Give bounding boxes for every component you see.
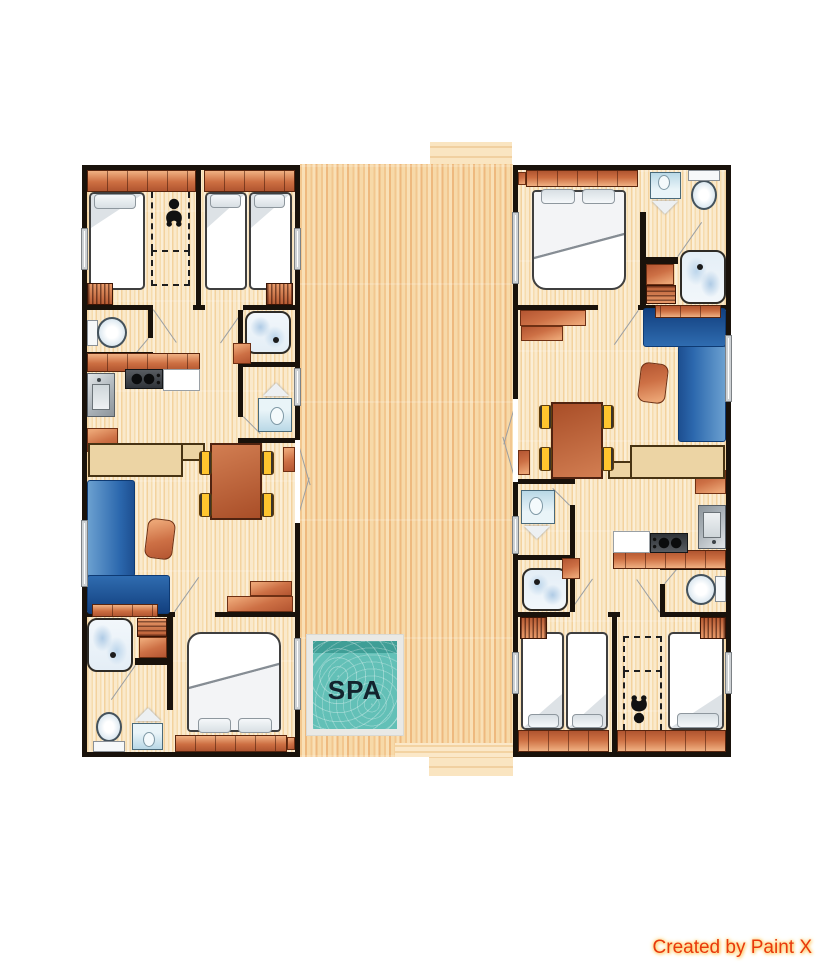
- double-bed: [187, 632, 281, 732]
- stove: [650, 533, 688, 553]
- bed-headshelf: [175, 735, 287, 752]
- window: [294, 228, 301, 270]
- counter-island: [88, 443, 183, 477]
- window: [725, 335, 732, 402]
- kitchen-counter: [613, 531, 650, 553]
- wall-bedrooms: [87, 305, 153, 310]
- unit-right: [513, 165, 731, 757]
- terrace-bottom-step: [429, 755, 513, 776]
- toilet: [691, 180, 717, 210]
- mirror: [135, 708, 161, 721]
- pillow: [528, 714, 559, 728]
- basin: [270, 407, 284, 425]
- bed-sheet: [189, 634, 279, 730]
- kitchen-sink: [87, 373, 115, 417]
- washbasin: [132, 723, 163, 750]
- baby-cot-dashed-line: [623, 672, 625, 730]
- bedside-cabinet: [287, 737, 295, 750]
- sink-basin: [703, 512, 721, 538]
- toilet: [96, 712, 122, 742]
- bed-headshelf: [204, 170, 295, 192]
- chair: [199, 451, 212, 475]
- bed-sheet: [534, 192, 624, 288]
- double-bed: [532, 190, 626, 290]
- sink-faucet: [712, 540, 716, 544]
- cabinet: [233, 343, 251, 364]
- chair: [199, 493, 212, 517]
- pillow: [198, 718, 231, 733]
- window: [512, 516, 519, 554]
- pillow: [94, 194, 136, 209]
- tv-cabinet: [227, 596, 293, 612]
- shower: [87, 618, 133, 672]
- bedside-cabinet: [518, 172, 526, 185]
- corner-sofa: [678, 345, 726, 442]
- unit-left: [82, 165, 300, 757]
- stove: [125, 369, 163, 389]
- basin: [143, 732, 155, 747]
- wall-bedrooms: [608, 612, 620, 617]
- dining-table: [210, 443, 262, 520]
- baby-cot-area: [151, 250, 190, 286]
- basin: [658, 175, 670, 190]
- dining-table: [551, 402, 603, 479]
- wall-bedrooms: [243, 305, 295, 310]
- wardrobe: [266, 283, 293, 305]
- window: [294, 368, 301, 406]
- sofa-shelf: [655, 305, 721, 318]
- floorplan-canvas: SPA: [0, 0, 818, 967]
- cabinet: [139, 637, 167, 658]
- towel-shelf: [137, 618, 167, 637]
- kitchen-counter: [163, 369, 200, 391]
- bed-headshelf: [87, 170, 196, 192]
- shower-drain: [697, 264, 703, 270]
- chair: [539, 447, 552, 471]
- wall-washroom: [570, 505, 575, 555]
- towel-shelf: [646, 285, 676, 304]
- washbasin: [521, 490, 555, 524]
- bed-headshelf: [617, 730, 726, 752]
- toilet-tank: [688, 170, 720, 181]
- tv-cabinet: [250, 581, 292, 596]
- toilet-tank: [93, 741, 125, 752]
- chair: [601, 405, 614, 429]
- terrace-door-opening: [295, 440, 300, 523]
- kitchen-sink: [698, 505, 726, 549]
- pillow: [541, 189, 575, 204]
- armchair: [144, 517, 177, 560]
- baby-cot-area: [623, 636, 662, 672]
- bed-headshelf: [526, 170, 638, 187]
- terrace-top-step: [430, 142, 512, 166]
- tv-cabinet: [520, 310, 586, 326]
- pillow: [210, 194, 241, 208]
- wall-wc: [148, 310, 153, 338]
- mirror: [524, 526, 550, 539]
- shower: [245, 311, 291, 354]
- baby-cot-dashed-line: [660, 672, 662, 730]
- wardrobe: [520, 617, 547, 639]
- terrace-deck: SPA: [300, 164, 513, 757]
- shower-drain: [110, 652, 116, 658]
- wardrobe: [700, 617, 726, 639]
- wall-washroom: [518, 479, 575, 484]
- toilet-tank: [715, 576, 726, 602]
- mirror: [652, 201, 678, 214]
- wall-living: [215, 612, 295, 617]
- basin: [529, 497, 543, 515]
- window: [294, 638, 301, 710]
- pillow: [238, 718, 272, 733]
- credit-text: Created by Paint X: [653, 937, 812, 959]
- toilet: [686, 574, 716, 605]
- door-swing: [614, 310, 639, 345]
- pillow: [572, 714, 603, 728]
- window: [81, 520, 88, 587]
- wall-bathroom: [135, 658, 173, 665]
- window: [725, 652, 732, 694]
- window: [81, 228, 88, 270]
- washbasin: [258, 398, 292, 432]
- sink-faucet: [97, 378, 101, 382]
- spa-pool: SPA: [307, 635, 403, 735]
- sofa-shelf: [92, 604, 158, 617]
- corner-sofa: [87, 480, 135, 577]
- pillow: [582, 189, 615, 204]
- window: [512, 212, 519, 284]
- armchair: [637, 361, 670, 404]
- shower-drain: [534, 579, 540, 585]
- mirror: [263, 383, 289, 396]
- counter-island: [630, 445, 725, 479]
- chair: [261, 451, 274, 475]
- sink-basin: [92, 384, 110, 410]
- door-swing: [174, 577, 199, 612]
- cabinet: [562, 558, 580, 579]
- pillow: [254, 194, 285, 208]
- baby-icon: [626, 692, 652, 724]
- chair: [601, 447, 614, 471]
- stool: [518, 450, 530, 475]
- baby-cot-dashed-line: [188, 192, 190, 250]
- cabinet: [646, 264, 674, 285]
- wall-bedroom-divider: [196, 170, 201, 305]
- washbasin: [650, 172, 681, 199]
- wall-bathroom: [640, 257, 678, 264]
- wall-wc: [660, 584, 665, 612]
- spa-label: SPA: [328, 675, 383, 706]
- baby-cot-dashed-line: [151, 192, 153, 250]
- chair: [539, 405, 552, 429]
- door-swing: [636, 579, 660, 612]
- tv-cabinet: [521, 326, 563, 341]
- wall-bedrooms: [193, 305, 205, 310]
- toilet: [97, 317, 127, 348]
- bed-headshelf: [518, 730, 609, 752]
- window: [512, 652, 519, 694]
- wardrobe: [87, 283, 113, 305]
- baby-icon: [161, 198, 187, 230]
- chair: [261, 493, 274, 517]
- terrace-bottom-planks: [395, 743, 513, 757]
- stool: [283, 447, 295, 472]
- wall-washroom: [238, 367, 243, 417]
- pillow: [677, 713, 719, 728]
- shower-drain: [273, 337, 279, 343]
- shower: [680, 250, 726, 304]
- door-swing: [153, 309, 177, 342]
